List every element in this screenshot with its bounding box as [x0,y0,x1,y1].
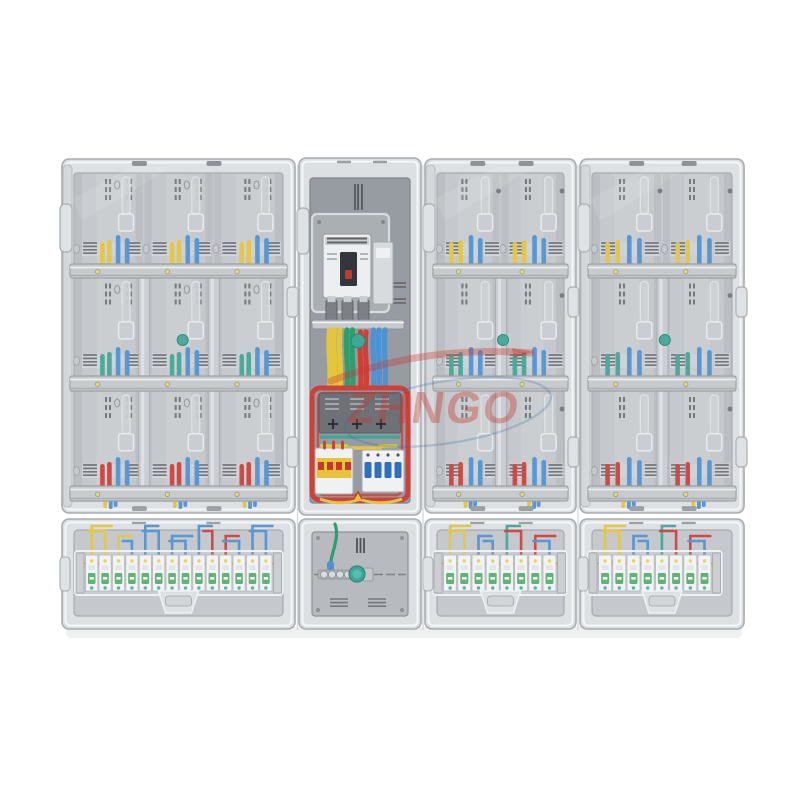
svg-text:ZHNGO: ZHNGO [344,382,524,433]
